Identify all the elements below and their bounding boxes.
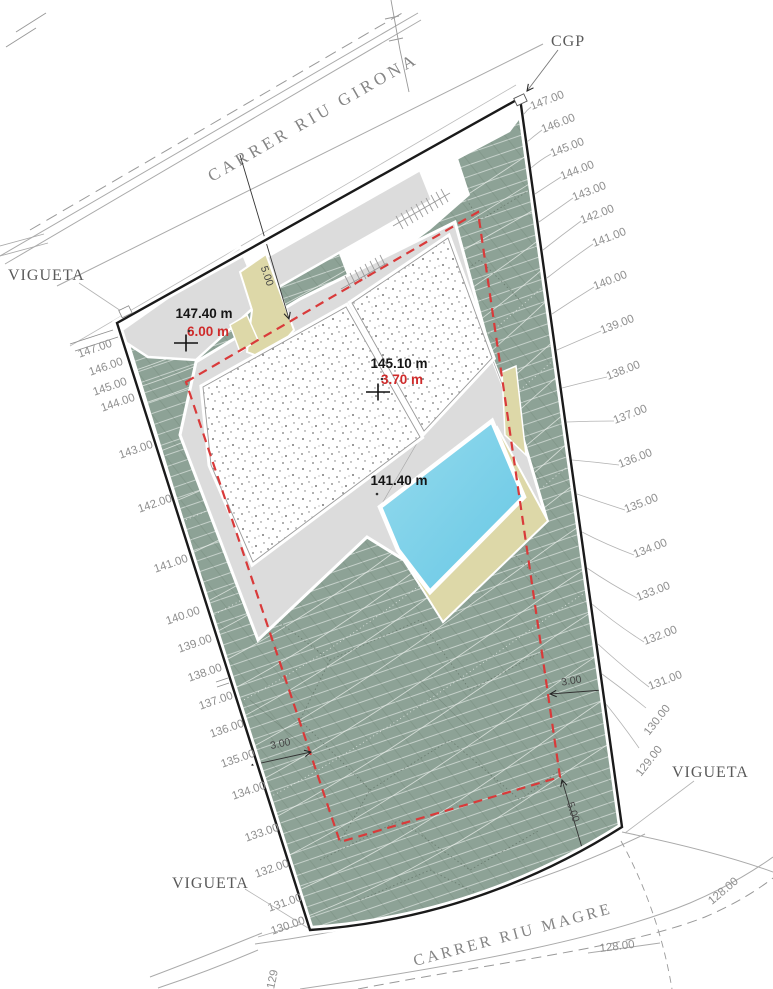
contour-label: 141.00 [591, 226, 628, 250]
contour-label: 146.00 [87, 356, 124, 379]
site-plan-drawing: CARRER RIU GIRONA CARRER RIU MAGRE 128.0… [0, 0, 773, 989]
street-name-girona: CARRER RIU GIRONA [205, 49, 422, 185]
spot-dot [188, 330, 191, 333]
contour-label: 139.00 [176, 633, 213, 656]
contour-label: 137.00 [612, 403, 649, 427]
contour-label-128: 128.00 [599, 939, 635, 955]
vigueta-label: VIGUETA [172, 875, 249, 892]
vigueta-label: VIGUETA [672, 764, 749, 781]
spot-dot [381, 378, 384, 381]
contour-label: 136.00 [208, 718, 245, 741]
spot-elevation-value: 147.40 m [175, 306, 232, 321]
contour-label: 131.00 [647, 669, 684, 693]
contour-label: 146.00 [540, 112, 577, 136]
spot-dot [376, 493, 379, 496]
spot-elevation-value: 145.10 m [370, 356, 427, 371]
contour-label: 137.00 [197, 690, 234, 713]
contour-label: 129.00 [634, 744, 665, 779]
contour-label: 130.00 [269, 915, 306, 938]
contour-label: 143.00 [571, 180, 608, 204]
spot-elevation-value: 141.40 m [370, 473, 427, 488]
contour-label: 145.00 [549, 136, 586, 160]
contour-label: 147.00 [529, 89, 566, 113]
contour-label: 140.00 [592, 269, 629, 293]
contour-label: 143.00 [117, 439, 154, 462]
annotation-vigueta-top-left: VIGUETA [8, 267, 132, 318]
contour-label: 132.00 [642, 624, 679, 648]
contour-label: 138.00 [605, 359, 642, 383]
contour-label: 131.00 [266, 892, 303, 915]
contour-label: 139.00 [599, 313, 636, 337]
contour-label: 129 [265, 969, 281, 989]
cgp-label: CGP [551, 33, 585, 50]
contour-label: 144.00 [559, 159, 596, 183]
site-plan-page: CARRER RIU GIRONA CARRER RIU MAGRE 128.0… [0, 0, 773, 989]
contour-label: 142.00 [579, 203, 616, 227]
contour-label: 130.00 [642, 703, 673, 738]
contour-label: 133.00 [243, 822, 280, 845]
contour-label: 136.00 [617, 447, 654, 471]
vigueta-label: VIGUETA [8, 267, 85, 284]
contour-label: 141.00 [152, 553, 189, 576]
contour-label: 134.00 [632, 537, 669, 561]
contour-label: 140.00 [164, 605, 201, 628]
contour-label: 134.00 [230, 780, 267, 803]
spot-height-value: 3.70 m [381, 372, 423, 387]
contour-label: 147.00 [76, 338, 113, 361]
contour-label: 142.00 [136, 493, 173, 516]
spot-height-value: 6.00 m [187, 324, 229, 339]
contour-label: 135.00 [219, 748, 256, 771]
contour-label: 132.00 [253, 858, 290, 881]
contour-label: 133.00 [635, 580, 672, 604]
contour-label: 135.00 [623, 492, 660, 516]
